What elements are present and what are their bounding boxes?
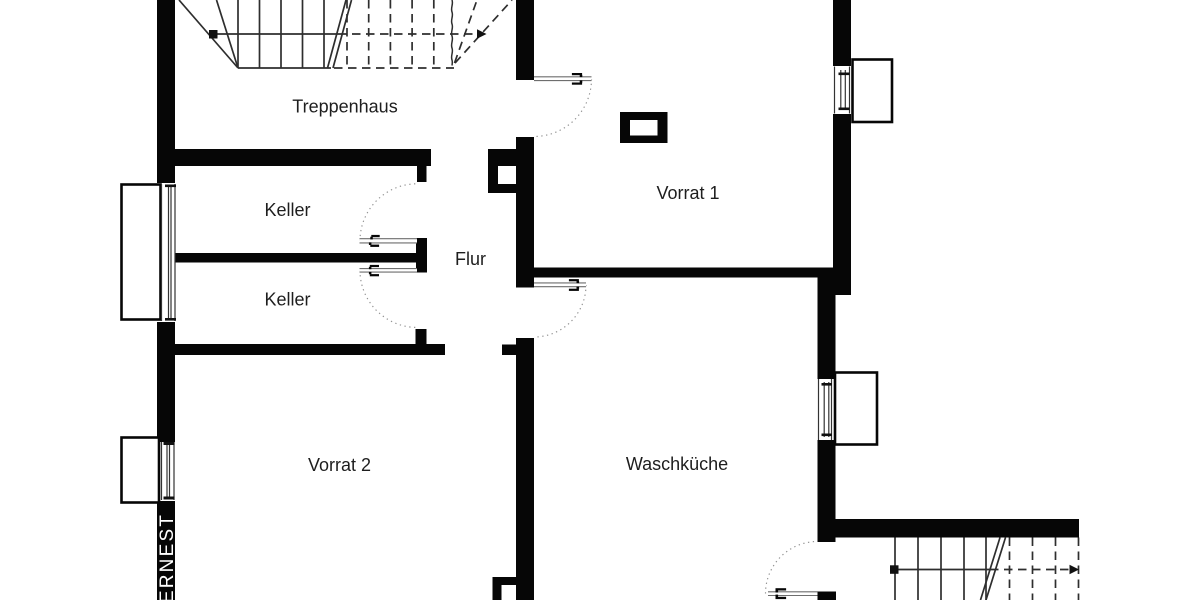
svg-text:Flur: Flur <box>455 249 486 269</box>
svg-text:Vorrat 1: Vorrat 1 <box>656 183 719 203</box>
svg-text:Waschküche: Waschküche <box>626 454 728 474</box>
svg-text:Vorrat 2: Vorrat 2 <box>308 455 371 475</box>
svg-text:Keller: Keller <box>264 200 310 220</box>
svg-text:Keller: Keller <box>264 290 310 310</box>
svg-text:VERNEST: VERNEST <box>157 513 178 600</box>
svg-text:Treppenhaus: Treppenhaus <box>292 97 397 117</box>
